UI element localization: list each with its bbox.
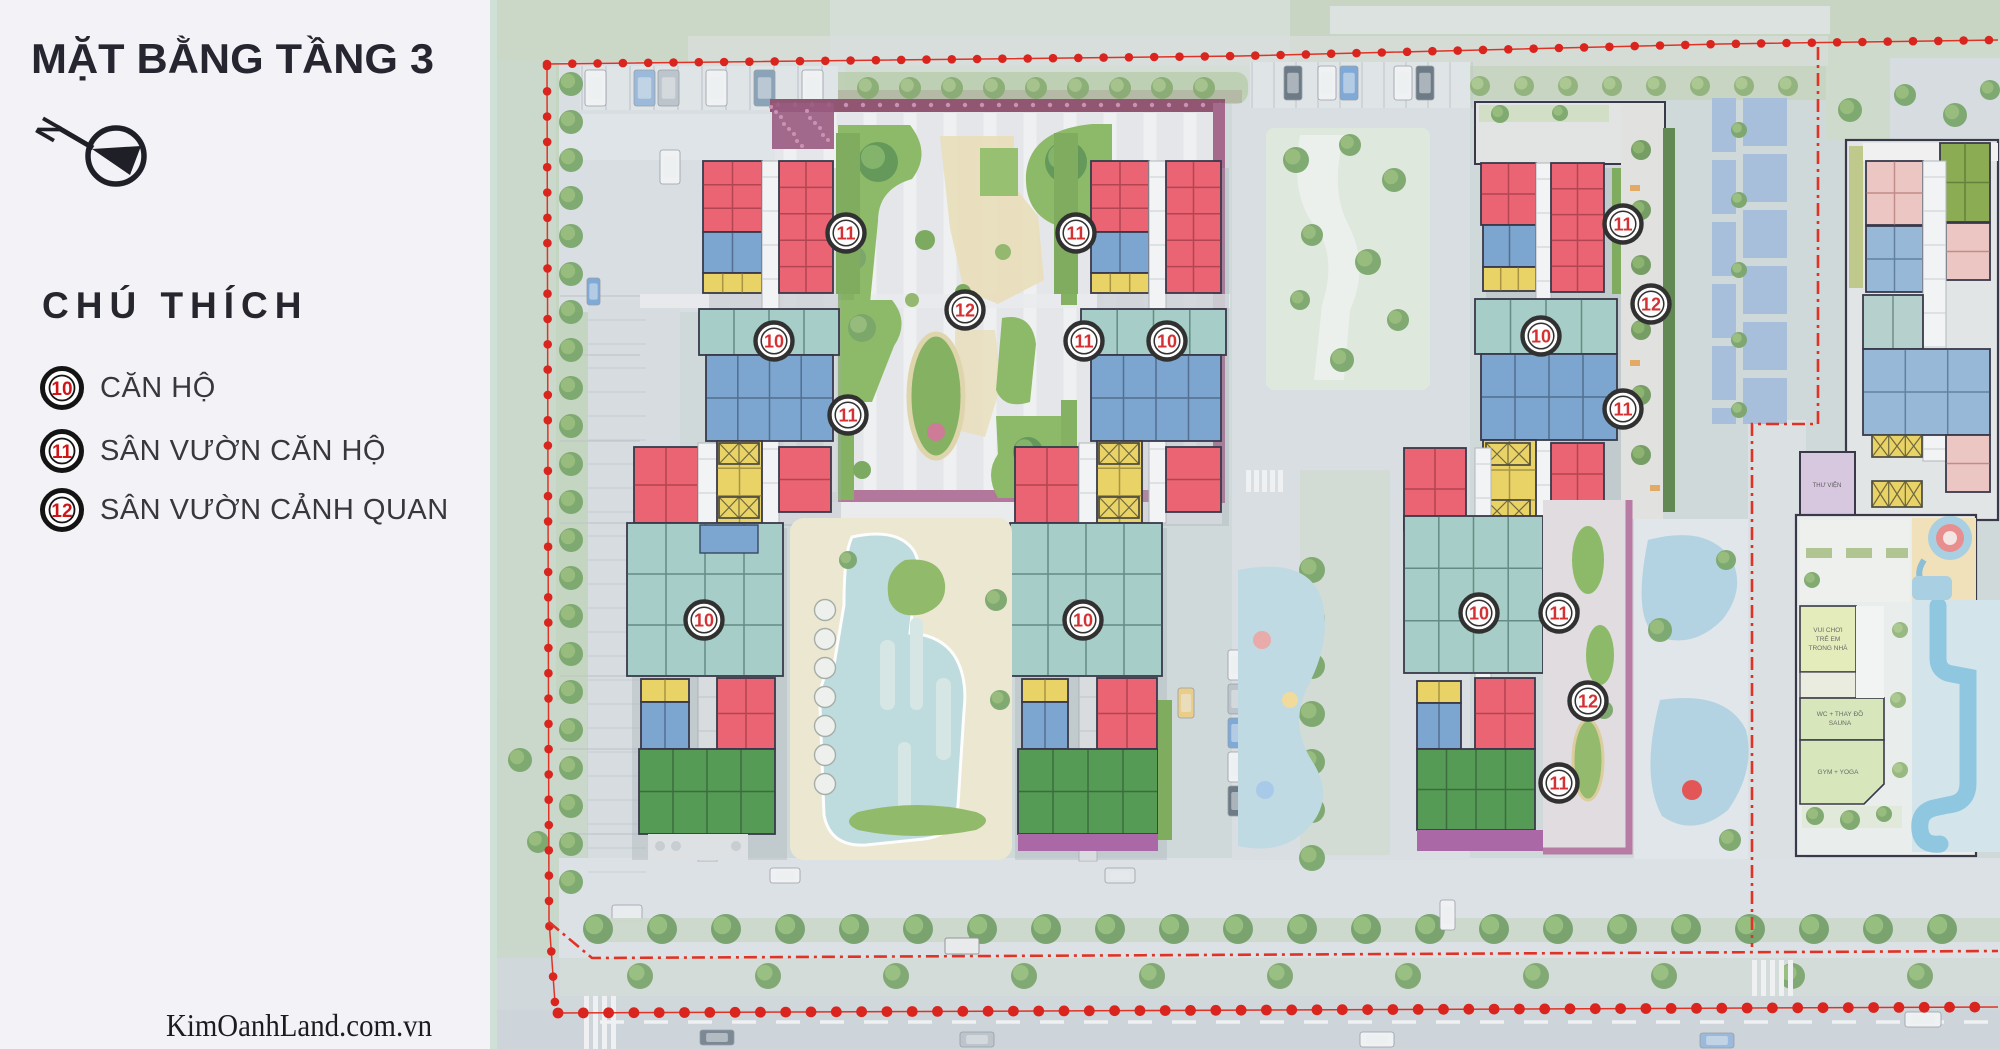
svg-text:SÂN VƯỜN CĂN HỘ: SÂN VƯỜN CĂN HỘ <box>100 433 386 467</box>
svg-text:MẶT BẰNG TẦNG 3: MẶT BẰNG TẦNG 3 <box>31 35 434 82</box>
svg-text:11: 11 <box>52 442 73 463</box>
svg-text:10: 10 <box>51 379 72 400</box>
svg-text:12: 12 <box>51 501 72 522</box>
svg-text:KimOanhLand.com.vn: KimOanhLand.com.vn <box>166 1007 432 1043</box>
svg-text:CĂN HỘ: CĂN HỘ <box>100 370 216 404</box>
svg-text:SÂN VƯỜN CẢNH QUAN: SÂN VƯỜN CẢNH QUAN <box>100 492 449 526</box>
svg-text:CHÚ THÍCH: CHÚ THÍCH <box>42 284 308 326</box>
